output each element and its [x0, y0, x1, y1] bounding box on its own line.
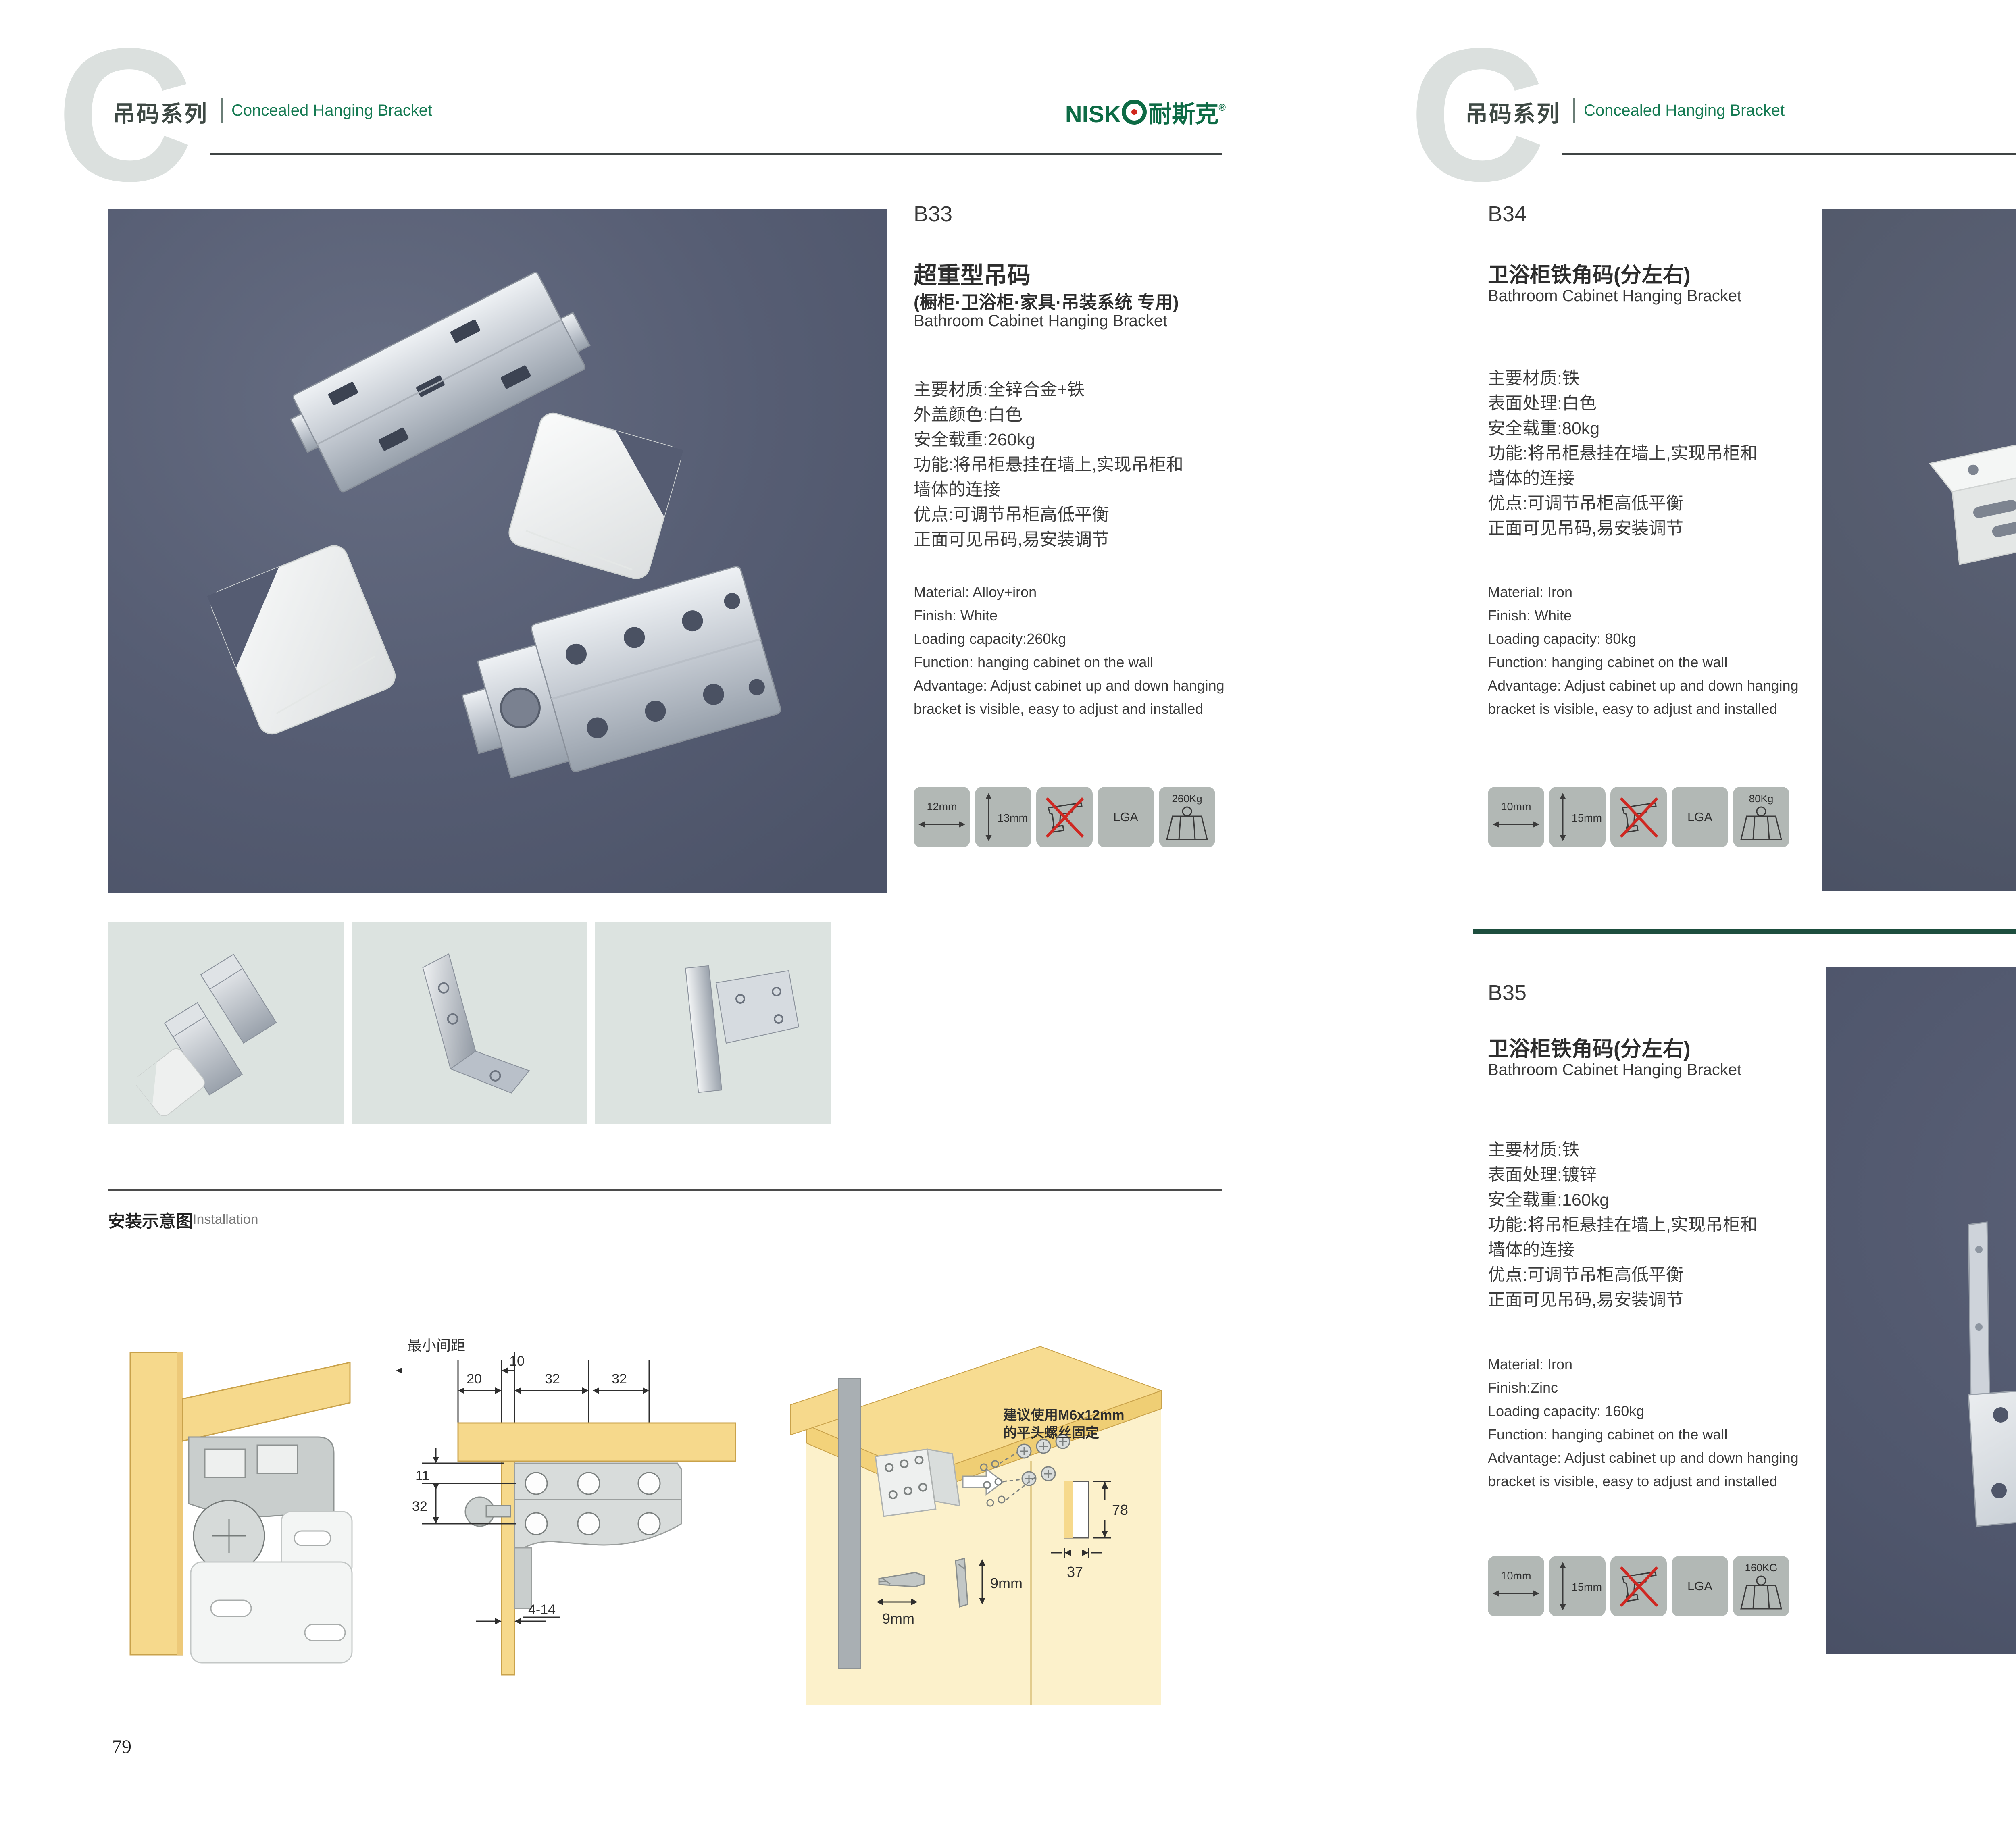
- installation-label-en: Installation: [193, 1212, 258, 1227]
- spec-line: Material: Iron: [1488, 1353, 1814, 1376]
- b35-title-zh: 卫浴柜铁角码(分左右): [1488, 1032, 1691, 1062]
- installation-diagram-3: 建议使用M6x12mm 的平头螺丝固定 78 37: [782, 1322, 1165, 1705]
- vertical-arrow-icon: [984, 793, 993, 841]
- page-number-left: 79: [112, 1736, 131, 1758]
- b35-icon-row: 10mm 15mm: [1488, 1556, 1789, 1616]
- spec-line: Advantage: Adjust cabinet up and down ha…: [1488, 1446, 1814, 1470]
- svg-text:20: 20: [467, 1371, 482, 1387]
- spec-line: 墙体的连接: [1488, 466, 1810, 491]
- spec-line: 优点:可调节吊柜高低平衡: [914, 502, 1236, 527]
- spec-line: 墙体的连接: [914, 477, 1236, 502]
- spec-line: 功能:将吊柜悬挂在墙上,实现吊柜和: [1488, 441, 1810, 466]
- drill-crossed-icon: [1610, 1556, 1667, 1616]
- spec-line: bracket is visible, easy to adjust and i…: [1488, 697, 1814, 721]
- spec-line: Loading capacity:260kg: [914, 627, 1240, 651]
- svg-text:的平头螺丝固定: 的平头螺丝固定: [1003, 1425, 1099, 1441]
- spec-line: bracket is visible, easy to adjust and i…: [914, 697, 1240, 721]
- height-icon: 13mm: [975, 787, 1031, 847]
- width-icon: 10mm: [1488, 787, 1544, 847]
- spec-line: 功能:将吊柜悬挂在墙上,实现吊柜和: [914, 452, 1236, 477]
- no-drill-icon: [1610, 1556, 1667, 1616]
- thumb-side-bracket: [685, 966, 799, 1092]
- spec-line: Function: hanging cabinet on the wall: [914, 651, 1240, 674]
- lga-cert-icon: LGA: [1098, 787, 1154, 847]
- svg-text:78: 78: [1112, 1502, 1128, 1518]
- wall-post: [839, 1379, 861, 1669]
- spec-line: 外盖颜色:白色: [914, 402, 1236, 427]
- b33-thumbnail-1: [108, 922, 344, 1124]
- weight-shape-icon: [1736, 806, 1786, 843]
- height-icon: 15mm: [1549, 787, 1606, 847]
- logo-text: NISK: [1065, 101, 1121, 127]
- spec-line: Advantage: Adjust cabinet up and down ha…: [914, 674, 1240, 697]
- load-weight-icon: 80Kg: [1733, 787, 1789, 847]
- svg-text:37: 37: [1067, 1564, 1083, 1580]
- spec-line: Advantage: Adjust cabinet up and down ha…: [1488, 674, 1814, 697]
- weight-shape-icon: [1736, 1575, 1786, 1612]
- horizontal-arrow-icon: [918, 820, 965, 829]
- no-drill-icon: [1036, 787, 1093, 847]
- series-title-zh: 吊码系列: [1465, 96, 1560, 129]
- spec-line: Function: hanging cabinet on the wall: [1488, 651, 1814, 674]
- page-right: C 吊码系列 Concealed Hanging Bracket NISK耐斯克…: [1352, 0, 2016, 1847]
- thumb-folded-bracket: [421, 942, 533, 1106]
- spec-line: bracket is visible, easy to adjust and i…: [1488, 1470, 1814, 1493]
- spec-line: Loading capacity: 80kg: [1488, 627, 1814, 651]
- b34-specs-en: Material: Iron Finish: White Loading cap…: [1488, 580, 1814, 721]
- svg-text:10: 10: [509, 1354, 525, 1369]
- header-divider-bar: [1573, 98, 1575, 123]
- spec-line: 优点:可调节吊柜高低平衡: [1488, 491, 1810, 516]
- b33-subtitle-zh: (橱柜·卫浴柜·家具·吊装系统 专用): [914, 288, 1236, 314]
- spec-line: 正面可见吊码,易安装调节: [1488, 516, 1810, 541]
- b33-product-photo: [108, 209, 887, 893]
- b33-specs-en: Material: Alloy+iron Finish: White Loadi…: [914, 580, 1240, 721]
- wood-top-board: [458, 1423, 735, 1461]
- svg-text:32: 32: [412, 1499, 427, 1514]
- svg-text:11: 11: [415, 1468, 429, 1483]
- drill-crossed-icon: [1036, 787, 1093, 847]
- width-icon: 10mm: [1488, 1556, 1544, 1616]
- weight-shape-icon: [1162, 806, 1212, 843]
- horizontal-arrow-icon: [1493, 1589, 1539, 1598]
- vertical-arrow-icon: [1558, 793, 1568, 841]
- series-title-en: Concealed Hanging Bracket: [231, 102, 432, 120]
- spec-line: 安全载重:260kg: [914, 427, 1236, 452]
- svg-text:32: 32: [545, 1371, 560, 1387]
- spec-line: 正面可见吊码,易安装调节: [914, 527, 1236, 552]
- load-weight-icon: 160KG: [1733, 1556, 1789, 1616]
- wood-top-board: [183, 1362, 350, 1441]
- b33-title-en: Bathroom Cabinet Hanging Bracket: [914, 312, 1167, 330]
- installation-label-zh: 安装示意图: [108, 1208, 193, 1232]
- width-icon: 12mm: [914, 787, 970, 847]
- spec-line: Material: Alloy+iron: [914, 580, 1240, 604]
- b33-specs-zh: 主要材质:全锌合金+铁 外盖颜色:白色 安全载重:260kg 功能:将吊柜悬挂在…: [914, 377, 1236, 552]
- logo-registered-mark: ®: [1218, 102, 1226, 113]
- spec-line: Finish: White: [1488, 604, 1814, 627]
- header-rule: [1562, 153, 2016, 155]
- spec-line: 功能:将吊柜悬挂在墙上,实现吊柜和: [1488, 1213, 1810, 1238]
- svg-text:4-14: 4-14: [528, 1602, 556, 1617]
- lga-cert-icon: LGA: [1672, 1556, 1728, 1616]
- installation-diagram-2: 最小间距 20 10 32 32: [383, 1322, 742, 1705]
- lga-cert-icon: LGA: [1672, 787, 1728, 847]
- wood-vertical-board: [130, 1352, 183, 1655]
- spec-line: 主要材质:铁: [1488, 366, 1810, 391]
- b34-product-photo: [1822, 209, 2016, 891]
- spec-line: 主要材质:全锌合金+铁: [914, 377, 1236, 402]
- brand-logo: NISK耐斯克®: [968, 95, 1226, 129]
- logo-red-dot-icon: [1131, 109, 1137, 115]
- spec-line: 优点:可调节吊柜高低平衡: [1488, 1263, 1810, 1287]
- spec-line: 表面处理:白色: [1488, 391, 1810, 416]
- spec-line: 安全载重:160kg: [1488, 1188, 1810, 1213]
- spec-line: 表面处理:镀锌: [1488, 1163, 1810, 1188]
- b35-product-photo: [1826, 967, 2016, 1654]
- spec-line: Material: Iron: [1488, 580, 1814, 604]
- spec-line: Function: hanging cabinet on the wall: [1488, 1423, 1814, 1446]
- logo-o-icon: [1122, 100, 1147, 125]
- header-rule: [210, 153, 1222, 155]
- page-left: C 吊码系列 Concealed Hanging Bracket NISK耐斯克…: [0, 0, 1352, 1847]
- b34-title-zh: 卫浴柜铁角码(分左右): [1488, 258, 1691, 288]
- series-title-en: Concealed Hanging Bracket: [1584, 102, 1785, 120]
- svg-text:32: 32: [612, 1371, 627, 1387]
- b35-specs-zh: 主要材质:铁 表面处理:镀锌 安全载重:160kg 功能:将吊柜悬挂在墙上,实现…: [1488, 1138, 1810, 1312]
- b33-thumbnail-3: [595, 922, 831, 1124]
- vertical-arrow-icon: [1558, 1562, 1568, 1610]
- product-separator-green: [1473, 929, 2016, 934]
- svg-text:建议使用M6x12mm: 建议使用M6x12mm: [1003, 1408, 1124, 1423]
- series-title-zh: 吊码系列: [113, 96, 208, 129]
- b35-title-en: Bathroom Cabinet Hanging Bracket: [1488, 1061, 1741, 1079]
- b34-code: B34: [1488, 202, 1527, 227]
- spec-line: 安全载重:80kg: [1488, 416, 1810, 441]
- b33-thumbnail-2: [352, 922, 587, 1124]
- logo-zh: 耐斯克: [1148, 101, 1218, 127]
- load-weight-icon: 260Kg: [1159, 787, 1215, 847]
- wood-back-panel: [502, 1461, 514, 1675]
- b34-title-en: Bathroom Cabinet Hanging Bracket: [1488, 287, 1741, 305]
- b35-specs-en: Material: Iron Finish:Zinc Loading capac…: [1488, 1353, 1814, 1493]
- svg-text:9mm: 9mm: [990, 1575, 1023, 1591]
- installation-diagram-1: [108, 1342, 366, 1669]
- b33-title-zh: 超重型吊码: [914, 256, 1031, 290]
- b35-code: B35: [1488, 980, 1527, 1005]
- spec-line: Loading capacity: 160kg: [1488, 1400, 1814, 1423]
- section-divider: [108, 1189, 1222, 1191]
- svg-text:9mm: 9mm: [882, 1610, 914, 1627]
- spec-line: 主要材质:铁: [1488, 1138, 1810, 1163]
- drill-crossed-icon: [1610, 787, 1667, 847]
- height-icon: 15mm: [1549, 1556, 1606, 1616]
- b34-icon-row: 10mm 15mm: [1488, 787, 1789, 847]
- header-divider-bar: [221, 98, 223, 123]
- b33-code: B33: [914, 202, 952, 227]
- horizontal-arrow-icon: [1493, 820, 1539, 829]
- spec-line: 正面可见吊码,易安装调节: [1488, 1287, 1810, 1312]
- b34-specs-zh: 主要材质:铁 表面处理:白色 安全载重:80kg 功能:将吊柜悬挂在墙上,实现吊…: [1488, 366, 1810, 541]
- min-spacing-label: 最小间距: [407, 1337, 465, 1354]
- no-drill-icon: [1610, 787, 1667, 847]
- spec-line: 墙体的连接: [1488, 1238, 1810, 1263]
- spec-line: Finish: White: [914, 604, 1240, 627]
- spec-line: Finish:Zinc: [1488, 1376, 1814, 1400]
- catalog-spread: C 吊码系列 Concealed Hanging Bracket NISK耐斯克…: [0, 0, 2016, 1847]
- b33-icon-row: 12mm 13mm: [914, 787, 1215, 847]
